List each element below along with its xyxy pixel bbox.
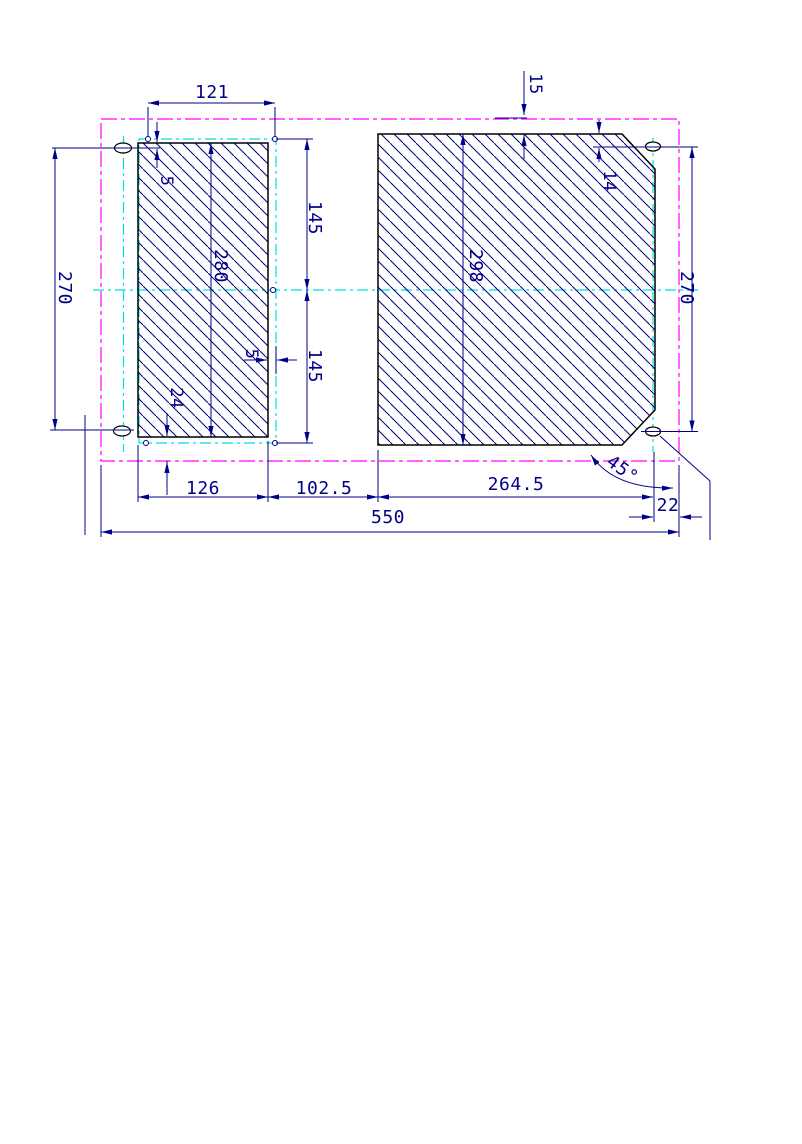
chamfer-extension-line: [660, 436, 710, 481]
dim-126: 126: [186, 478, 220, 499]
dim-5-top: 5: [156, 176, 176, 187]
hole-bottom-left: [114, 426, 131, 436]
dim-298: 298: [465, 249, 486, 283]
chamfer-callout: [591, 436, 710, 540]
dim-121: 121: [195, 82, 229, 103]
dim-2645: 264.5: [488, 474, 545, 495]
dim-14: 14: [599, 170, 619, 191]
dim-145-bottom: 145: [304, 349, 325, 383]
dim-280: 280: [210, 249, 231, 283]
dim-270-left: 270: [54, 271, 75, 305]
dim-45deg: 45°: [602, 451, 642, 488]
dim-1025: 102.5: [296, 478, 353, 499]
dim-22: 22: [657, 495, 680, 516]
cad-drawing: 121 126 102.5 264.5 550 22 15 14 5 5 24 …: [0, 0, 802, 1144]
dim-145-top: 145: [304, 201, 325, 235]
dim-15: 15: [525, 73, 545, 94]
dim-550: 550: [371, 507, 405, 528]
dim-270-right: 270: [676, 271, 697, 305]
left-hatched-cutout: [138, 143, 268, 437]
drawing-canvas: 121 126 102.5 264.5 550 22 15 14 5 5 24 …: [0, 0, 802, 1144]
dim-24: 24: [166, 387, 186, 408]
dim-5-side: 5: [241, 349, 261, 360]
